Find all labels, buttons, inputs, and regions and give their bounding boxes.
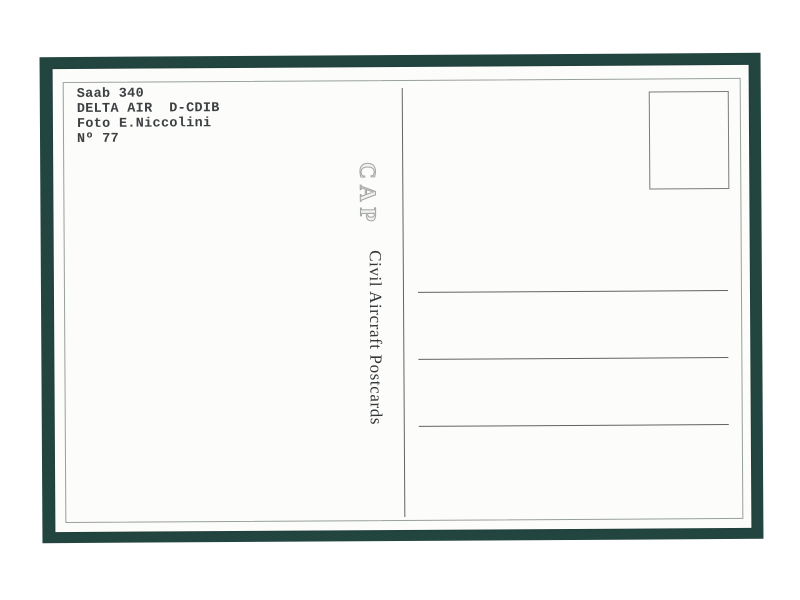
mat-frame: Saab 340 DELTA AIR D-CDIB Foto E.Niccoli…	[40, 53, 764, 543]
address-line	[418, 290, 728, 293]
caption-line-number: Nº 77	[77, 131, 220, 147]
stamp-box	[649, 91, 730, 189]
caption-block: Saab 340 DELTA AIR D-CDIB Foto E.Niccoli…	[77, 86, 220, 147]
publisher-logo: CAP	[354, 162, 380, 227]
address-line	[418, 357, 728, 360]
publisher-name: Civil Aircraft Postcards	[365, 250, 386, 425]
caption-line-aircraft: Saab 340	[77, 86, 220, 102]
postcard-back: Saab 340 DELTA AIR D-CDIB Foto E.Niccoli…	[53, 65, 752, 532]
caption-line-airline-registration: DELTA AIR D-CDIB	[77, 101, 220, 117]
caption-line-photographer: Foto E.Niccolini	[77, 116, 220, 132]
address-line	[419, 424, 729, 427]
postcard-scan: Saab 340 DELTA AIR D-CDIB Foto E.Niccoli…	[0, 0, 800, 600]
divider-line	[402, 88, 406, 517]
